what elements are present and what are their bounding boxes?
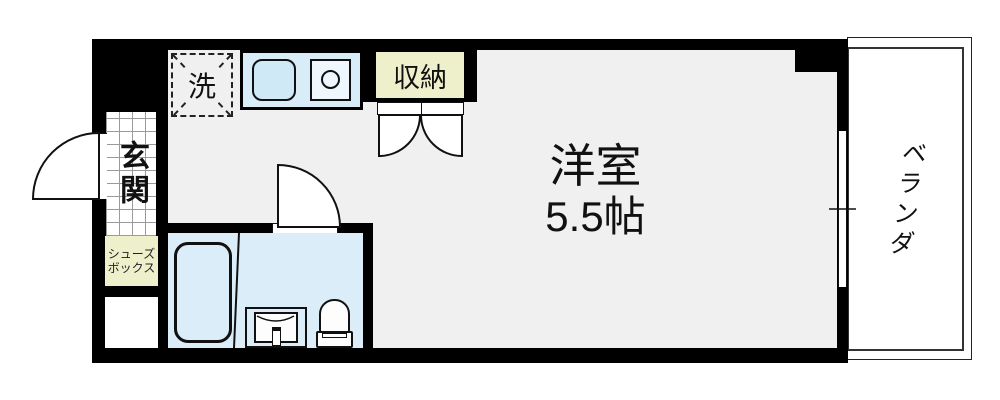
main-room-name: 洋室 [478,140,713,192]
storage-closet: 収納 [372,48,468,102]
bathroom-top-wall [168,223,373,233]
closet-door-opening [377,102,464,115]
washing-machine-label: 洗 [186,65,218,105]
shoe-box-cabinet: シューズ ボックス [105,236,158,286]
storage-label: 収納 [393,56,447,95]
pipe-space [105,297,158,348]
kitchen-sink-icon [252,59,296,101]
stove-icon [310,59,351,101]
veranda-label: ベランダ [878,128,934,272]
bathroom-door-opening [272,223,338,233]
shoe-box-label-line2: ボックス [108,261,156,275]
main-room-size: 5.5帖 [478,192,713,242]
shoe-box-label-line1: シューズ [108,247,155,261]
sliding-window [838,131,847,287]
entrance-label: 玄関 [109,140,153,208]
entrance-door-opening [91,133,107,199]
bathtub-icon [174,242,232,343]
bathroom-right-wall [363,223,373,348]
toilet-icon [319,299,350,335]
wall-step-block [795,50,837,72]
washing-machine-space: 洗 [171,53,233,117]
wall-stub-left [363,50,372,102]
floorplan: ベランダ 玄関 シューズ ボックス 洗 収納 洋室 5.5 [0,0,1000,400]
toilet-seat-icon [322,333,347,338]
main-room-label: 洋室 5.5帖 [478,140,713,242]
faucet-icon [272,327,281,346]
entrance-door-swing [33,133,99,199]
stove-burner-icon [321,70,340,89]
wall-stub-right [468,50,477,102]
entrance-area: 玄関 [106,112,156,236]
